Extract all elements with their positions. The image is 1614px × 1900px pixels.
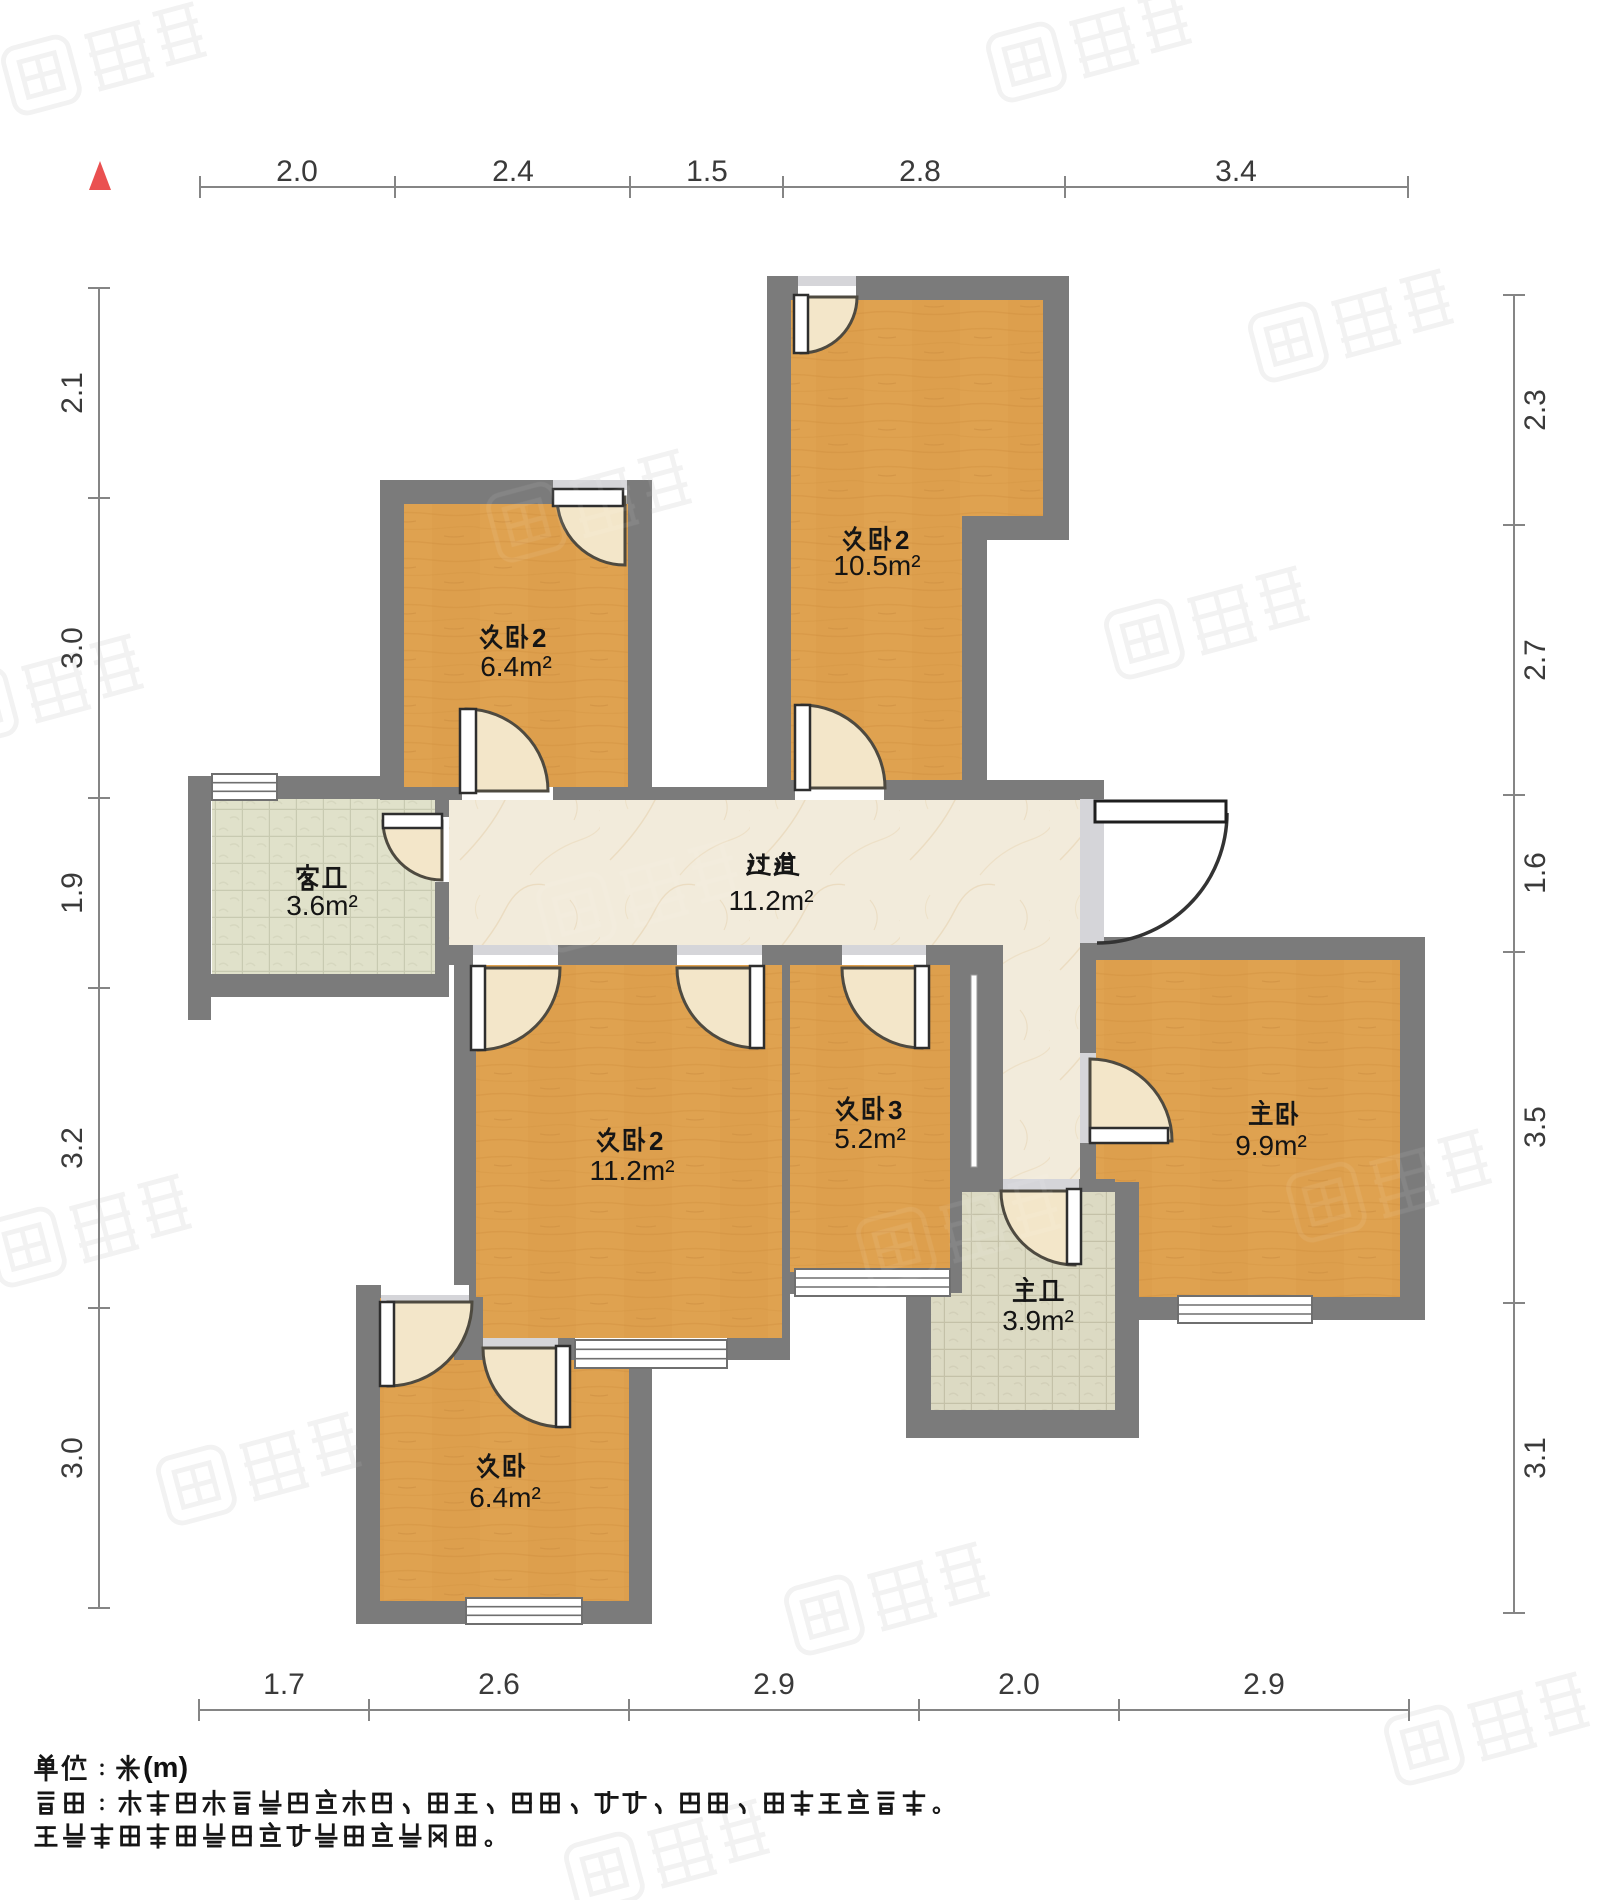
- svg-text:3.1: 3.1: [1519, 1437, 1552, 1479]
- svg-text:9.9m²: 9.9m²: [1235, 1130, 1307, 1161]
- svg-text:1.6: 1.6: [1519, 852, 1552, 894]
- svg-text:2.4: 2.4: [492, 155, 534, 188]
- svg-text:2: 2: [649, 1126, 663, 1156]
- svg-text:3.9m²: 3.9m²: [1002, 1305, 1074, 1336]
- svg-text:2.9: 2.9: [1243, 1668, 1285, 1701]
- svg-text:3: 3: [888, 1095, 902, 1125]
- svg-text:3.2: 3.2: [56, 1127, 89, 1169]
- svg-text:11.2m²: 11.2m²: [728, 885, 813, 916]
- svg-text:2.6: 2.6: [478, 1668, 520, 1701]
- svg-text:2.0: 2.0: [276, 155, 318, 188]
- svg-text:2.0: 2.0: [998, 1668, 1040, 1701]
- svg-text:1.5: 1.5: [686, 155, 728, 188]
- svg-text:5.2m²: 5.2m²: [834, 1123, 906, 1154]
- svg-text:3.6m²: 3.6m²: [286, 890, 358, 921]
- svg-text:3.0: 3.0: [56, 1437, 89, 1479]
- svg-text:1.9: 1.9: [56, 872, 89, 914]
- svg-text:2.3: 2.3: [1519, 389, 1552, 431]
- svg-text:10.5m²: 10.5m²: [833, 550, 920, 581]
- svg-text:2.7: 2.7: [1519, 639, 1552, 681]
- svg-text:11.2m²: 11.2m²: [589, 1155, 674, 1186]
- svg-text:6.4m²: 6.4m²: [480, 651, 552, 682]
- svg-text:3.4: 3.4: [1215, 155, 1257, 188]
- svg-text:(m): (m): [143, 1752, 188, 1784]
- svg-text:3.5: 3.5: [1519, 1106, 1552, 1148]
- svg-text:6.4m²: 6.4m²: [469, 1482, 541, 1513]
- svg-text:2: 2: [532, 623, 546, 653]
- svg-text:3.0: 3.0: [56, 627, 89, 669]
- svg-text:1.7: 1.7: [263, 1668, 305, 1701]
- svg-text:2.1: 2.1: [56, 372, 89, 414]
- svg-text:2.9: 2.9: [753, 1668, 795, 1701]
- svg-text:2.8: 2.8: [899, 155, 941, 188]
